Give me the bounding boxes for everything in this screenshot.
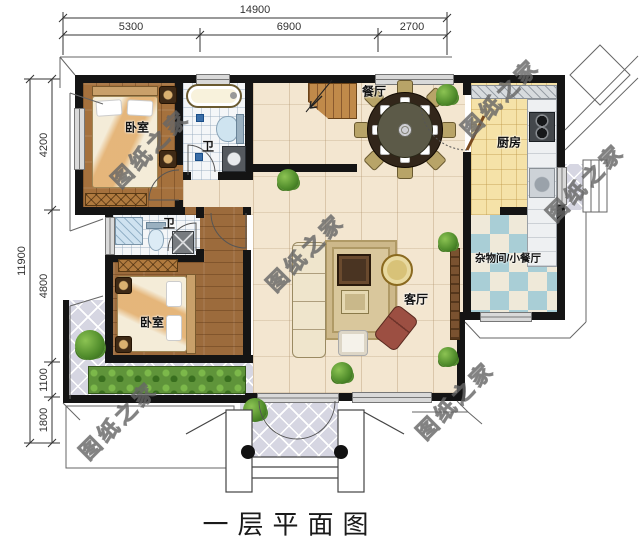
room-label-dining: 餐厅: [362, 83, 386, 100]
toilet-tank: [236, 114, 244, 144]
dim-left-total: 11900: [16, 246, 28, 276]
stove: [529, 112, 555, 142]
room-label-utility: 杂物间/小餐厅: [475, 251, 541, 266]
wall: [175, 200, 183, 215]
room-label-bedroom-bottom: 卧室: [140, 314, 164, 331]
pillow: [127, 99, 154, 116]
floor-drain: [196, 114, 204, 122]
plant: [436, 84, 458, 106]
dim-top-segment-3: 2700: [400, 21, 424, 33]
wall: [243, 250, 251, 363]
shower: [115, 217, 143, 245]
plant: [277, 169, 299, 191]
washing-machine: [172, 231, 194, 254]
porch-column: [241, 445, 255, 459]
dim-left-segment-2: 4800: [38, 274, 50, 298]
sink-cabinet: [222, 146, 246, 172]
table-centerpiece: [398, 123, 412, 137]
toilet: [216, 116, 238, 142]
flower-bed: [88, 366, 246, 394]
pillow: [95, 99, 122, 117]
tea-table: [341, 290, 369, 314]
bed-headboard: [186, 274, 196, 354]
page-title: 一层平面图: [202, 505, 377, 542]
room-label-bath-mid: 卫: [163, 215, 175, 232]
wall: [463, 152, 471, 312]
wall: [75, 75, 565, 83]
toilet: [148, 229, 164, 251]
tree: [243, 398, 267, 422]
plant-stand: [450, 248, 460, 340]
wall: [243, 207, 251, 215]
wall: [183, 172, 191, 180]
main-entry-door: [257, 393, 339, 403]
porch-column: [334, 445, 348, 459]
floor-plan-canvas: 卧室 卫 餐厅 厨房 杂物间/小餐厅 客厅 卧室 卫 14900 5300 69…: [0, 0, 640, 547]
wardrobe: [85, 193, 147, 206]
plant: [438, 232, 458, 252]
wall: [245, 83, 253, 180]
pillow: [166, 315, 182, 341]
plant: [438, 347, 458, 367]
wall: [557, 75, 565, 167]
bed-headboard: [92, 86, 158, 96]
dining-chair: [441, 122, 456, 138]
window: [105, 217, 115, 255]
dim-left-segment-3: 1100: [38, 368, 50, 392]
dim-top-total: 14900: [240, 4, 271, 16]
window: [74, 108, 85, 170]
coffee-table: [338, 330, 368, 356]
window: [480, 312, 532, 322]
dim-left-segment-4: 1800: [38, 408, 50, 432]
tree: [75, 330, 105, 360]
wall: [105, 355, 253, 363]
wardrobe: [118, 259, 178, 272]
wall: [196, 207, 204, 218]
tv-cabinet: [337, 254, 371, 286]
window: [352, 392, 432, 403]
room-label-bath-top: 卫: [202, 138, 214, 155]
nightstand: [115, 336, 132, 353]
dim-top-segment-1: 5300: [119, 21, 143, 33]
wall: [218, 172, 253, 180]
dim-left-segment-1: 4200: [38, 133, 50, 157]
plant: [331, 362, 353, 384]
pillow: [166, 281, 182, 307]
bathtub-faucet: [230, 92, 237, 99]
wall: [63, 300, 69, 403]
wall: [253, 164, 357, 172]
round-side-table: [381, 254, 413, 286]
dim-top-segment-2: 6900: [277, 21, 301, 33]
nightstand: [115, 277, 132, 294]
room-label-living: 客厅: [404, 291, 428, 308]
wall: [463, 83, 471, 95]
window: [375, 74, 454, 85]
room-label-kitchen: 厨房: [497, 134, 521, 151]
